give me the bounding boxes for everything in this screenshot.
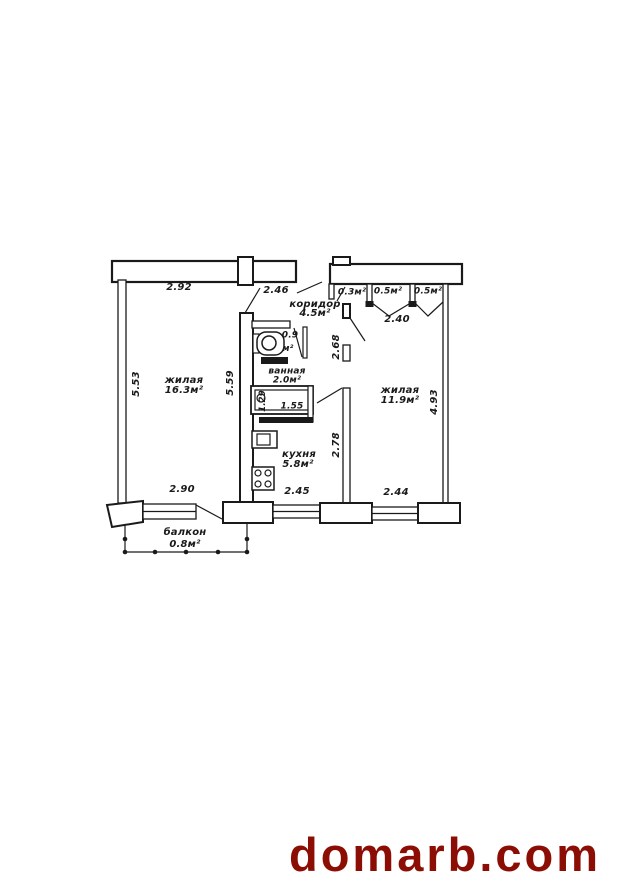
closet-3-door-fold <box>415 302 443 316</box>
dim-kitchen-height: 2.78 <box>332 432 342 457</box>
room-label-living-left-area: 16.3м² <box>165 386 203 396</box>
dim-top-left-width: 2.92 <box>166 283 191 293</box>
toilet-room <box>252 321 307 364</box>
floor-plan-drawing <box>0 0 630 893</box>
dim-left-height: 5.53 <box>132 371 142 396</box>
room-label-living-right-area: 11.9м² <box>381 396 419 406</box>
dim-right-height: 4.93 <box>430 389 440 414</box>
wall-right <box>443 284 448 503</box>
sink-icon <box>252 431 277 448</box>
wall-toilet-right <box>303 327 307 358</box>
wall-balcony-block <box>107 501 143 527</box>
room-label-bathroom-area: 2.0м² <box>273 377 301 386</box>
dim-top-right-width: 2.46 <box>263 286 288 296</box>
room-label-closet-3: 0.5м² <box>414 288 442 297</box>
dim-left-room-height: 5.59 <box>226 370 236 395</box>
dim-bath-width: 1.55 <box>280 403 303 412</box>
wall-left <box>118 280 126 503</box>
dim-bottom-left-width: 2.90 <box>169 485 194 495</box>
wall-bottom-right <box>418 503 460 523</box>
wall-closet-sep-1 <box>367 284 372 303</box>
wall-toilet-top <box>252 321 290 328</box>
wall-bottom-center <box>223 502 273 523</box>
room-label-kitchen-area: 5.8м² <box>282 460 313 470</box>
kitchen-door-swing <box>317 388 342 403</box>
floor-plan-page: жилая 16.3м² жилая 11.9м² кухня 5.8м² ва… <box>0 0 630 893</box>
entrance-door-swing <box>297 282 322 293</box>
room-label-balcony-name: балкон <box>164 528 207 538</box>
bottom-wall-row <box>107 501 460 527</box>
wall-bath-right <box>308 386 313 422</box>
dim-bath-depth: 1.29 <box>259 390 268 412</box>
dim-bottom-right-width: 2.44 <box>383 488 408 498</box>
wall-bath-kitchen-divider <box>259 417 313 423</box>
toilet-icon <box>253 332 284 355</box>
room-label-corridor-area: 4.5м² <box>299 309 330 319</box>
wall-top-left <box>112 261 296 282</box>
wall-top-right-bump <box>333 257 350 265</box>
wall-closet-left <box>329 284 334 299</box>
wall-top-right <box>330 264 462 284</box>
living-right-door-swing <box>350 318 365 341</box>
wall-corridor-upper <box>343 345 350 361</box>
dim-corridor-height: 2.68 <box>332 334 342 359</box>
closet-sep-foot-1 <box>366 301 374 307</box>
wall-bottom-mid <box>320 503 372 523</box>
wall-kitchen-right <box>343 388 350 503</box>
wall-toilet-bath-divider <box>261 357 288 364</box>
stove-icon <box>252 467 274 490</box>
room-label-closet-2: 0.5м² <box>374 288 402 297</box>
balcony-door-swing <box>196 505 222 519</box>
dim-bottom-mid-width: 2.45 <box>284 487 309 497</box>
wall-pilaster <box>238 257 253 285</box>
room-label-balcony-area: 0.8м² <box>169 540 200 550</box>
room-label-toilet-area: 0.9 <box>282 332 299 341</box>
living-right-door-leaf <box>343 304 350 318</box>
room-label-closet-1: 0.3м² <box>338 289 366 298</box>
site-watermark: domarb.com <box>289 831 601 878</box>
living-left-door-swing <box>245 288 260 313</box>
room-label-toilet-unit: м² <box>282 345 293 354</box>
dim-closets-width: 2.40 <box>384 315 409 325</box>
